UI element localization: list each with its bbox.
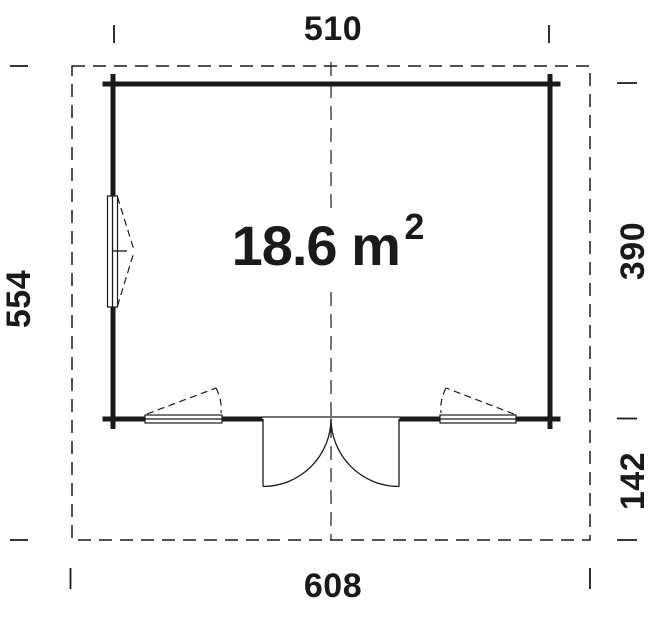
dimension-top: 510 bbox=[114, 10, 549, 48]
window-left-swing-lower bbox=[118, 252, 135, 306]
window-bottom-left-sash bbox=[216, 388, 221, 413]
window-bottom-right bbox=[440, 388, 516, 423]
area-label: 18.6 m 2 bbox=[232, 206, 425, 277]
area-value: 18.6 m bbox=[232, 214, 400, 277]
dimension-bottom-label: 608 bbox=[304, 567, 362, 605]
dimension-top-label: 510 bbox=[304, 10, 362, 48]
window-bottom-right-swing bbox=[446, 388, 514, 414]
window-left bbox=[108, 196, 135, 307]
dimension-right-lower: 142 bbox=[614, 452, 649, 540]
dimension-left-label: 554 bbox=[0, 270, 38, 328]
floor-plan-page: 18.6 m 2 510 608 554 390 bbox=[0, 0, 649, 632]
dimension-right-lower-label: 142 bbox=[614, 452, 649, 510]
dimension-bottom: 608 bbox=[71, 567, 591, 605]
area-superscript: 2 bbox=[404, 206, 424, 247]
door-swing-arc-right bbox=[331, 419, 399, 487]
dimension-left: 554 bbox=[0, 66, 38, 540]
floor-plan-drawing: 18.6 m 2 510 608 554 390 bbox=[0, 0, 649, 632]
dimension-right-upper-label: 390 bbox=[614, 222, 649, 280]
dimension-right-upper: 390 bbox=[614, 83, 649, 419]
window-left-swing-upper bbox=[118, 197, 135, 250]
door-swing-arc-left bbox=[263, 419, 331, 487]
window-bottom-left-swing bbox=[147, 388, 216, 414]
window-bottom-left bbox=[145, 388, 222, 423]
window-bottom-right-sash bbox=[441, 388, 446, 413]
